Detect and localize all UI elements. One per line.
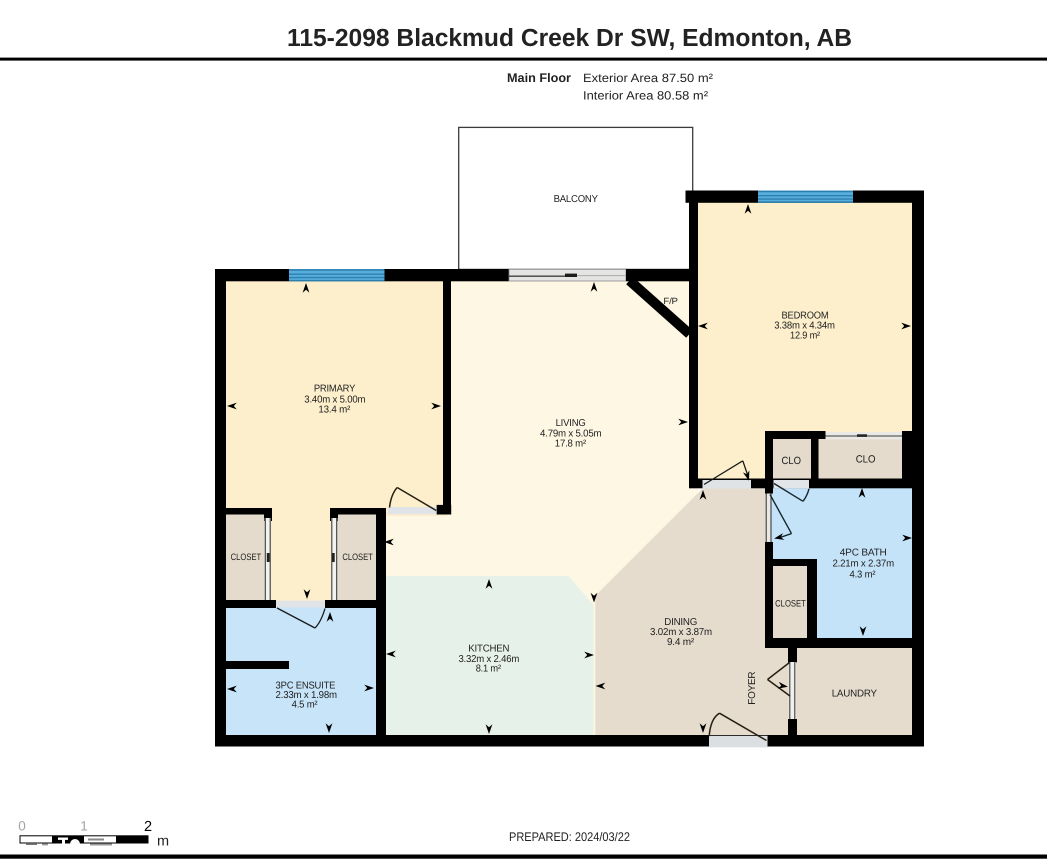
svg-text:PRIMARY: PRIMARY bbox=[314, 384, 356, 395]
svg-text:CLO: CLO bbox=[856, 453, 876, 465]
svg-text:9.4 m²: 9.4 m² bbox=[667, 637, 695, 648]
svg-text:2: 2 bbox=[144, 819, 152, 835]
svg-text:CLOSET: CLOSET bbox=[342, 552, 373, 562]
svg-text:PREPARED: 2024/03/22: PREPARED: 2024/03/22 bbox=[509, 830, 630, 844]
svg-text:2.21m x 2.37m: 2.21m x 2.37m bbox=[832, 559, 894, 570]
svg-text:8.1 m²: 8.1 m² bbox=[476, 663, 502, 674]
svg-text:CLO: CLO bbox=[782, 455, 802, 467]
svg-text:BALCONY: BALCONY bbox=[554, 194, 599, 205]
svg-text:4.5 m²: 4.5 m² bbox=[292, 700, 319, 711]
svg-text:Exterior Area 87.50 m²: Exterior Area 87.50 m² bbox=[583, 71, 713, 85]
svg-text:12.9 m²: 12.9 m² bbox=[790, 331, 821, 342]
svg-text:CLOSET: CLOSET bbox=[775, 599, 806, 609]
svg-text:CLOSET: CLOSET bbox=[231, 552, 262, 562]
svg-text:0: 0 bbox=[18, 819, 26, 834]
svg-text:F/P: F/P bbox=[663, 296, 678, 306]
svg-text:FOYER: FOYER bbox=[747, 672, 758, 705]
svg-text:Interior Area 80.58 m²: Interior Area 80.58 m² bbox=[583, 89, 708, 103]
svg-text:LAUNDRY: LAUNDRY bbox=[832, 688, 878, 699]
svg-text:17.8 m²: 17.8 m² bbox=[555, 438, 587, 449]
svg-text:4.3 m²: 4.3 m² bbox=[850, 570, 877, 581]
svg-text:13.4 m²: 13.4 m² bbox=[318, 404, 351, 415]
svg-text:m: m bbox=[157, 834, 169, 850]
svg-text:1: 1 bbox=[80, 819, 88, 834]
svg-text:4PC BATH: 4PC BATH bbox=[840, 547, 887, 558]
svg-text:115-2098 Blackmud Creek Dr SW,: 115-2098 Blackmud Creek Dr SW, Edmonton,… bbox=[287, 25, 852, 52]
svg-text:Main Floor: Main Floor bbox=[507, 71, 571, 85]
svg-text:KITCHEN: KITCHEN bbox=[468, 644, 509, 655]
svg-text:LIVING: LIVING bbox=[556, 418, 586, 429]
